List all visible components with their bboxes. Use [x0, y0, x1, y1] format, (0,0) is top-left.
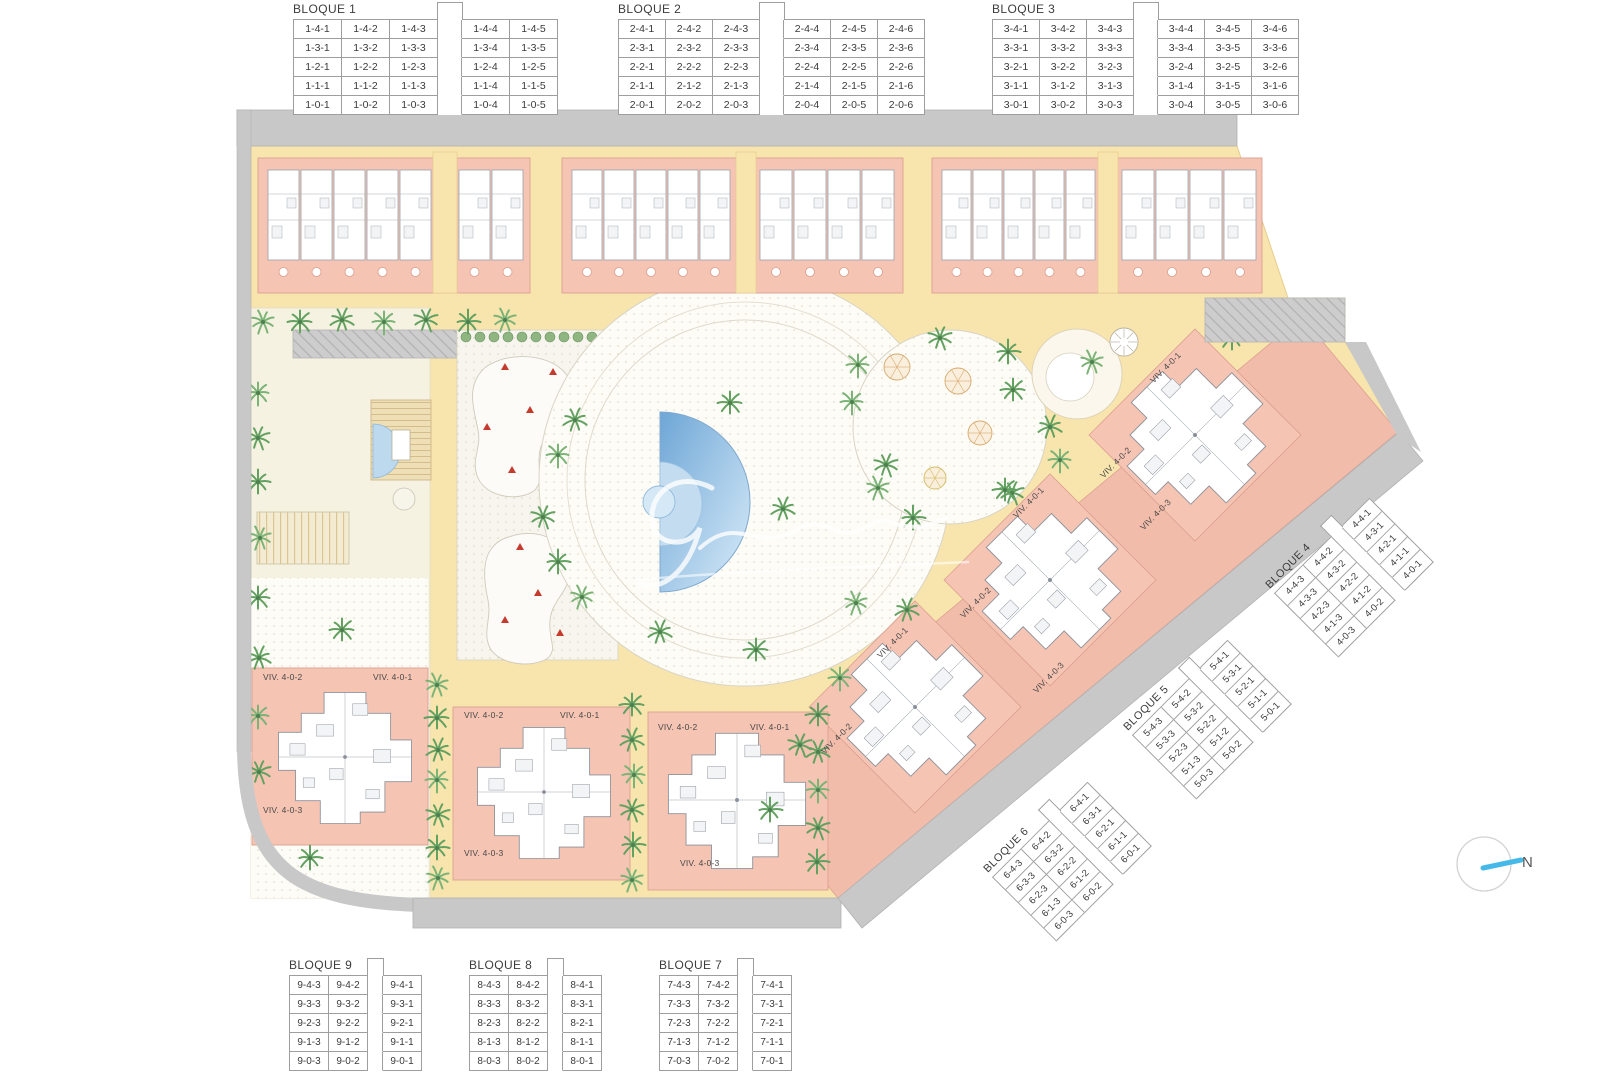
gap-cell	[438, 77, 462, 96]
table-gap-box	[367, 958, 384, 976]
unit-cell: 3-2-3	[1087, 58, 1134, 77]
unit-cell: 1-3-4	[462, 39, 510, 58]
unit-cell: 2-4-1	[619, 20, 666, 39]
unit-cell: 2-2-1	[619, 58, 666, 77]
unit-cell: 8-2-3	[470, 1014, 509, 1033]
table-title: BLOQUE 9	[289, 958, 422, 972]
unit-cell: 2-2-3	[713, 58, 760, 77]
unit-cell: 2-1-5	[831, 77, 878, 96]
unit-cell: 7-0-3	[660, 1052, 699, 1071]
unit-cell: 2-4-5	[831, 20, 878, 39]
unit-label: VIV. 4-0-3	[680, 858, 720, 868]
unit-label: VIV. 4-0-1	[750, 722, 790, 732]
unit-cell: 1-4-1	[294, 20, 342, 39]
gap-cell	[368, 1052, 383, 1071]
unit-cell: 3-1-1	[993, 77, 1040, 96]
unit-cell: 3-0-6	[1252, 96, 1299, 115]
unit-cell: 8-4-2	[509, 976, 548, 995]
unit-cell: 2-4-3	[713, 20, 760, 39]
gap-cell	[738, 1033, 753, 1052]
unit-label: VIV. 4-0-2	[658, 722, 698, 732]
unit-cell: 7-4-3	[660, 976, 699, 995]
unit-cell: 3-0-1	[993, 96, 1040, 115]
table-gap-box	[759, 2, 785, 20]
gap-cell	[1134, 77, 1158, 96]
unit-cell: 7-1-2	[699, 1033, 738, 1052]
unit-cell: 7-3-1	[753, 995, 792, 1014]
unit-cell: 3-4-1	[993, 20, 1040, 39]
unit-cell: 9-3-2	[329, 995, 368, 1014]
gap-cell	[1134, 20, 1158, 39]
unit-table: 2-4-12-4-22-4-32-4-42-4-52-4-62-3-12-3-2…	[618, 19, 925, 115]
unit-cell: 9-2-3	[290, 1014, 329, 1033]
unit-cell: 2-2-4	[784, 58, 831, 77]
unit-cell: 9-1-2	[329, 1033, 368, 1052]
unit-cell: 2-3-6	[878, 39, 925, 58]
unit-cell: 2-3-3	[713, 39, 760, 58]
gap-cell	[1134, 96, 1158, 115]
unit-cell: 8-2-2	[509, 1014, 548, 1033]
unit-cell: 7-3-2	[699, 995, 738, 1014]
unit-cell: 2-1-4	[784, 77, 831, 96]
unit-cell: 3-0-2	[1040, 96, 1087, 115]
gap-cell	[548, 976, 563, 995]
spa-circle	[643, 486, 675, 518]
gap-cell	[548, 1052, 563, 1071]
gap-cell	[738, 995, 753, 1014]
unit-cell: 3-1-2	[1040, 77, 1087, 96]
table-gap-box	[547, 958, 564, 976]
gap-cell	[760, 39, 784, 58]
unit-cell: 1-4-4	[462, 20, 510, 39]
unit-cell: 7-3-3	[660, 995, 699, 1014]
unit-cell: 2-0-1	[619, 96, 666, 115]
unit-cell: 9-4-2	[329, 976, 368, 995]
unit-cell: 3-3-5	[1205, 39, 1252, 58]
unit-cell: 1-0-1	[294, 96, 342, 115]
gap-cell	[760, 77, 784, 96]
unit-cell: 3-4-6	[1252, 20, 1299, 39]
hedge-row	[461, 332, 611, 342]
unit-cell: 9-4-3	[290, 976, 329, 995]
unit-cell: 2-4-2	[666, 20, 713, 39]
unit-cell: 8-4-1	[563, 976, 602, 995]
unit-cell: 3-3-3	[1087, 39, 1134, 58]
unit-cell: 3-2-2	[1040, 58, 1087, 77]
unit-cell: 2-0-2	[666, 96, 713, 115]
unit-cell: 3-0-3	[1087, 96, 1134, 115]
table-title: BLOQUE 1	[293, 2, 558, 16]
unit-label: VIV. 4-0-2	[464, 710, 504, 720]
table-gap-box	[1133, 2, 1159, 20]
unit-cell: 3-1-6	[1252, 77, 1299, 96]
unit-cell: 8-4-3	[470, 976, 509, 995]
unit-cell: 2-0-4	[784, 96, 831, 115]
unit-cell: 7-2-3	[660, 1014, 699, 1033]
unit-cell: 3-4-3	[1087, 20, 1134, 39]
north-indicator	[1457, 837, 1521, 891]
umbrella-icon	[945, 368, 971, 394]
unit-cell: 7-2-2	[699, 1014, 738, 1033]
unit-cell: 1-1-3	[390, 77, 438, 96]
unit-cell: 7-1-1	[753, 1033, 792, 1052]
unit-table: 8-4-38-4-28-4-18-3-38-3-28-3-18-2-38-2-2…	[469, 975, 602, 1071]
unit-cell: 2-3-4	[784, 39, 831, 58]
unit-cell: 9-4-1	[383, 976, 422, 995]
siteplan-canvas: BLOQUE 11-4-11-4-21-4-31-4-41-4-51-3-11-…	[0, 0, 1620, 1080]
unit-cell: 2-2-6	[878, 58, 925, 77]
unit-cell: 1-2-4	[462, 58, 510, 77]
unit-cell: 3-3-1	[993, 39, 1040, 58]
unit-cell: 8-3-2	[509, 995, 548, 1014]
unit-cell: 8-3-1	[563, 995, 602, 1014]
gap-cell	[438, 39, 462, 58]
unit-cell: 8-2-1	[563, 1014, 602, 1033]
unit-cell: 1-1-4	[462, 77, 510, 96]
gap-cell	[760, 20, 784, 39]
unit-cell: 2-0-5	[831, 96, 878, 115]
unit-cell: 3-2-5	[1205, 58, 1252, 77]
unit-cell: 7-1-3	[660, 1033, 699, 1052]
unit-cell: 1-3-3	[390, 39, 438, 58]
unit-cell: 1-0-3	[390, 96, 438, 115]
unit-cell: 9-1-1	[383, 1033, 422, 1052]
unit-cell: 3-3-2	[1040, 39, 1087, 58]
unit-cell: 3-0-5	[1205, 96, 1252, 115]
gap-cell	[438, 20, 462, 39]
gap-cell	[760, 96, 784, 115]
unit-cell: 9-1-3	[290, 1033, 329, 1052]
unit-cell: 8-0-2	[509, 1052, 548, 1071]
gap-cell	[738, 1052, 753, 1071]
unit-cell: 1-3-5	[510, 39, 558, 58]
unit-cell: 8-0-3	[470, 1052, 509, 1071]
unit-cell: 1-0-2	[342, 96, 390, 115]
gap-cell	[548, 995, 563, 1014]
unit-cell: 3-2-6	[1252, 58, 1299, 77]
unit-cell: 3-2-4	[1158, 58, 1205, 77]
unit-cell: 3-4-2	[1040, 20, 1087, 39]
unit-cell: 7-2-1	[753, 1014, 792, 1033]
unit-cell: 3-3-6	[1252, 39, 1299, 58]
unit-cell: 2-3-2	[666, 39, 713, 58]
unit-cell: 2-0-3	[713, 96, 760, 115]
unit-table: 1-4-11-4-21-4-31-4-41-4-51-3-11-3-21-3-3…	[293, 19, 558, 115]
bloque-table-1: BLOQUE 11-4-11-4-21-4-31-4-41-4-51-3-11-…	[291, 2, 558, 115]
unit-table: 3-4-13-4-23-4-33-4-43-4-53-4-63-3-13-3-2…	[992, 19, 1299, 115]
unit-cell: 3-2-1	[993, 58, 1040, 77]
table-gap-box	[437, 2, 463, 20]
gap-cell	[368, 995, 383, 1014]
unit-cell: 1-3-2	[342, 39, 390, 58]
bloque-table-2: BLOQUE 22-4-12-4-22-4-32-4-42-4-52-4-62-…	[616, 2, 925, 115]
unit-table: 9-4-39-4-29-4-19-3-39-3-29-3-19-2-39-2-2…	[289, 975, 422, 1071]
unit-label: VIV. 4-0-1	[373, 672, 413, 682]
unit-cell: 1-2-2	[342, 58, 390, 77]
unit-cell: 9-0-2	[329, 1052, 368, 1071]
gap-cell	[368, 976, 383, 995]
unit-cell: 9-2-2	[329, 1014, 368, 1033]
gap-cell	[738, 1014, 753, 1033]
unit-cell: 1-4-5	[510, 20, 558, 39]
unit-cell: 9-0-3	[290, 1052, 329, 1071]
bloque-table-9: BLOQUE 99-4-39-4-29-4-19-3-39-3-29-3-19-…	[287, 958, 422, 1071]
unit-cell: 7-4-1	[753, 976, 792, 995]
unit-cell: 1-1-1	[294, 77, 342, 96]
unit-cell: 8-3-3	[470, 995, 509, 1014]
gap-cell	[368, 1033, 383, 1052]
gap-cell	[1134, 58, 1158, 77]
unit-cell: 2-2-5	[831, 58, 878, 77]
unit-cell: 3-0-4	[1158, 96, 1205, 115]
unit-cell: 3-1-4	[1158, 77, 1205, 96]
unit-cell: 1-2-3	[390, 58, 438, 77]
umbrella-icon	[884, 354, 910, 380]
unit-cell: 8-1-2	[509, 1033, 548, 1052]
unit-cell: 9-0-1	[383, 1052, 422, 1071]
north-label: N	[1522, 854, 1533, 871]
unit-cell: 1-4-2	[342, 20, 390, 39]
unit-cell: 2-4-6	[878, 20, 925, 39]
unit-cell: 1-1-2	[342, 77, 390, 96]
gap-cell	[738, 976, 753, 995]
unit-cell: 8-1-3	[470, 1033, 509, 1052]
gap-cell	[760, 58, 784, 77]
table-gap-box	[737, 958, 754, 976]
gap-cell	[438, 96, 462, 115]
unit-label: VIV. 4-0-2	[263, 672, 303, 682]
fountain	[1110, 328, 1138, 356]
unit-label: VIV. 4-0-1	[560, 710, 600, 720]
bloque-table-8: BLOQUE 88-4-38-4-28-4-18-3-38-3-28-3-18-…	[467, 958, 602, 1071]
table-title: BLOQUE 8	[469, 958, 602, 972]
unit-cell: 8-0-1	[563, 1052, 602, 1071]
gap-cell	[1134, 39, 1158, 58]
unit-cell: 8-1-1	[563, 1033, 602, 1052]
bloque-table-3: BLOQUE 33-4-13-4-23-4-33-4-43-4-53-4-63-…	[990, 2, 1299, 115]
umbrella-icon	[968, 421, 992, 445]
unit-cell: 2-0-6	[878, 96, 925, 115]
unit-cell: 2-1-6	[878, 77, 925, 96]
gap-cell	[548, 1014, 563, 1033]
unit-cell: 3-4-4	[1158, 20, 1205, 39]
unit-cell: 1-2-1	[294, 58, 342, 77]
unit-cell: 7-0-2	[699, 1052, 738, 1071]
unit-cell: 2-1-3	[713, 77, 760, 96]
unit-cell: 2-3-5	[831, 39, 878, 58]
unit-cell: 2-2-2	[666, 58, 713, 77]
unit-label: VIV. 4-0-3	[263, 805, 303, 815]
unit-cell: 2-1-1	[619, 77, 666, 96]
unit-cell: 9-3-1	[383, 995, 422, 1014]
unit-cell: 1-0-4	[462, 96, 510, 115]
unit-cell: 2-4-4	[784, 20, 831, 39]
unit-cell: 7-4-2	[699, 976, 738, 995]
unit-cell: 1-0-5	[510, 96, 558, 115]
bloque-table-7: BLOQUE 77-4-37-4-27-4-17-3-37-3-27-3-17-…	[657, 958, 792, 1071]
unit-table: 7-4-37-4-27-4-17-3-37-3-27-3-17-2-37-2-2…	[659, 975, 792, 1071]
unit-cell: 2-1-2	[666, 77, 713, 96]
unit-cell: 1-4-3	[390, 20, 438, 39]
umbrella-icon	[924, 467, 946, 489]
unit-cell: 3-1-5	[1205, 77, 1252, 96]
unit-cell: 2-3-1	[619, 39, 666, 58]
unit-cell: 9-3-3	[290, 995, 329, 1014]
unit-cell: 3-1-3	[1087, 77, 1134, 96]
top-building-row	[258, 152, 1262, 293]
gap-cell	[438, 58, 462, 77]
unit-label: VIV. 4-0-3	[464, 848, 504, 858]
unit-cell: 3-3-4	[1158, 39, 1205, 58]
unit-cell: 1-1-5	[510, 77, 558, 96]
unit-cell: 9-2-1	[383, 1014, 422, 1033]
unit-cell: 7-0-1	[753, 1052, 792, 1071]
unit-cell: 3-4-5	[1205, 20, 1252, 39]
table-title: BLOQUE 7	[659, 958, 792, 972]
unit-cell: 1-3-1	[294, 39, 342, 58]
gap-cell	[368, 1014, 383, 1033]
gap-cell	[548, 1033, 563, 1052]
unit-cell: 1-2-5	[510, 58, 558, 77]
